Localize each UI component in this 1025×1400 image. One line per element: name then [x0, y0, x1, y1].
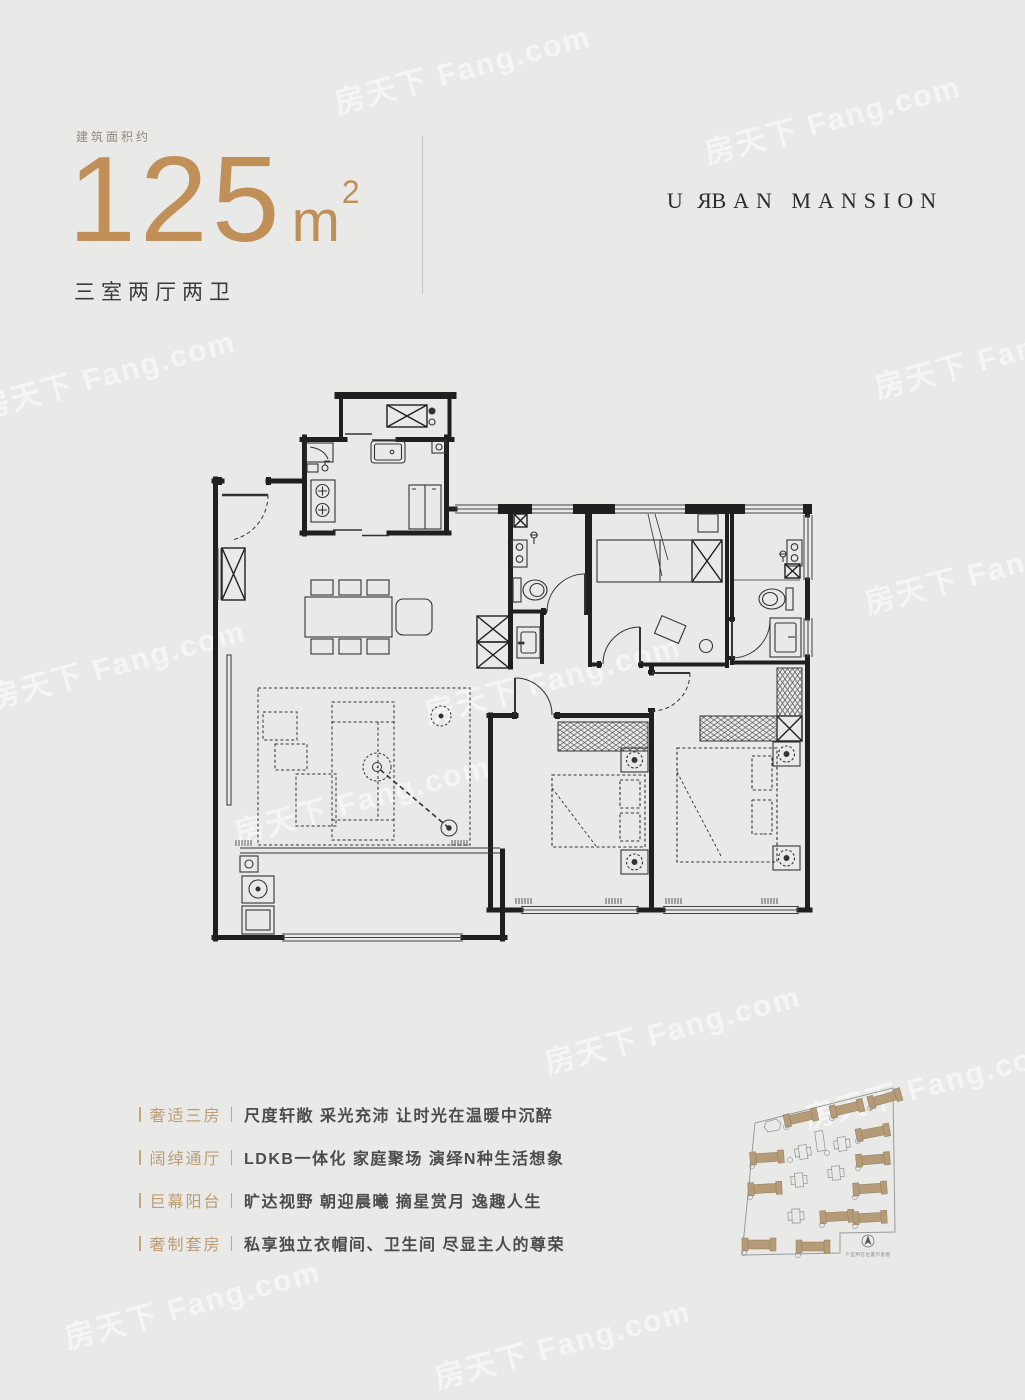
- feature-label: 巨幕阳台: [150, 1188, 222, 1212]
- site-boundary: [742, 1088, 895, 1255]
- divider-bar: [139, 1107, 141, 1122]
- wardrobes: [558, 668, 802, 751]
- divider-bar: [231, 1193, 233, 1208]
- feature-row: 奢适三房 尺度轩敞 采光充沛 让时光在温暖中沉醉: [130, 1103, 553, 1125]
- area-unit: m: [292, 189, 340, 254]
- feature-row: 奢制套房 私享独立衣帽间、卫生间 尽显主人的尊荣: [130, 1232, 565, 1254]
- watermark: 房天下 Fang.com: [429, 1287, 695, 1398]
- feature-row: 巨幕阳台 旷达视野 朝迎晨曦 摘星赏月 逸趣人生: [130, 1189, 542, 1211]
- compass-icon: [862, 1235, 874, 1247]
- balcony: [240, 856, 274, 934]
- watermark: 房天下 Fang.com: [869, 297, 1025, 408]
- divider-bar: [231, 1236, 233, 1251]
- watermark: 房天下 Fang.com: [329, 12, 595, 123]
- feature-description: 私享独立衣帽间、卫生间 尽显主人的尊荣: [244, 1231, 565, 1255]
- dining-set: [305, 580, 432, 654]
- divider-bar: [139, 1150, 141, 1165]
- area-exponent: 2: [342, 174, 360, 210]
- header-divider: [422, 136, 423, 294]
- feature-description: LDKB一体化 家庭聚场 演绎N种生活想象: [244, 1145, 564, 1169]
- page: 房天下 Fang.com 房天下 Fang.com 房天下 Fang.com 房…: [0, 0, 1025, 1400]
- walls: [214, 395, 810, 939]
- floor-plan: [195, 383, 825, 953]
- feature-label: 奢适三房: [150, 1102, 222, 1126]
- site-buildings-outline: [764, 1119, 851, 1223]
- feature-description: 尺度轩敞 采光充沛 让时光在温暖中沉醉: [244, 1102, 553, 1126]
- divider-bar: [231, 1150, 233, 1165]
- divider-bar: [139, 1236, 141, 1251]
- watermark: 房天下 Fang.com: [859, 512, 1025, 623]
- hall-cabinet: [517, 627, 540, 658]
- living-room: [227, 655, 470, 846]
- site-buildings-highlight: [742, 1088, 903, 1253]
- feature-description: 旷达视野 朝迎晨曦 摘星赏月 逸趣人生: [244, 1188, 542, 1212]
- layout-subtitle: 三室两厅两卫: [74, 276, 236, 306]
- bathroom-1: [512, 532, 547, 602]
- brand-mirrored-r: R: [690, 188, 712, 214]
- bedroom-2: [597, 514, 718, 653]
- watermark: 房天下 Fang.com: [59, 1247, 325, 1358]
- feature-label: 阔绰通厅: [150, 1145, 222, 1169]
- divider-bar: [139, 1193, 141, 1208]
- bedroom-3: [516, 748, 648, 904]
- site-plan: 户型所在位置示意图: [735, 1065, 995, 1275]
- site-plan-caption: 户型所在位置示意图: [846, 1251, 891, 1258]
- watermark: 房天下 Fang.com: [699, 62, 965, 173]
- brand-part: BAN MANSION: [711, 188, 943, 213]
- bathroom-2: [733, 540, 802, 657]
- divider-bar: [231, 1107, 233, 1122]
- area-value: 125m2: [68, 138, 360, 260]
- area-number: 125: [68, 131, 284, 267]
- feature-label: 奢制套房: [150, 1231, 222, 1255]
- bedroom-4: [666, 742, 800, 904]
- brand-logo: URBAN MANSION: [640, 188, 970, 214]
- feature-row: 阔绰通厅 LDKB一体化 家庭聚场 演绎N种生活想象: [130, 1146, 564, 1168]
- brand-part: U: [667, 188, 690, 213]
